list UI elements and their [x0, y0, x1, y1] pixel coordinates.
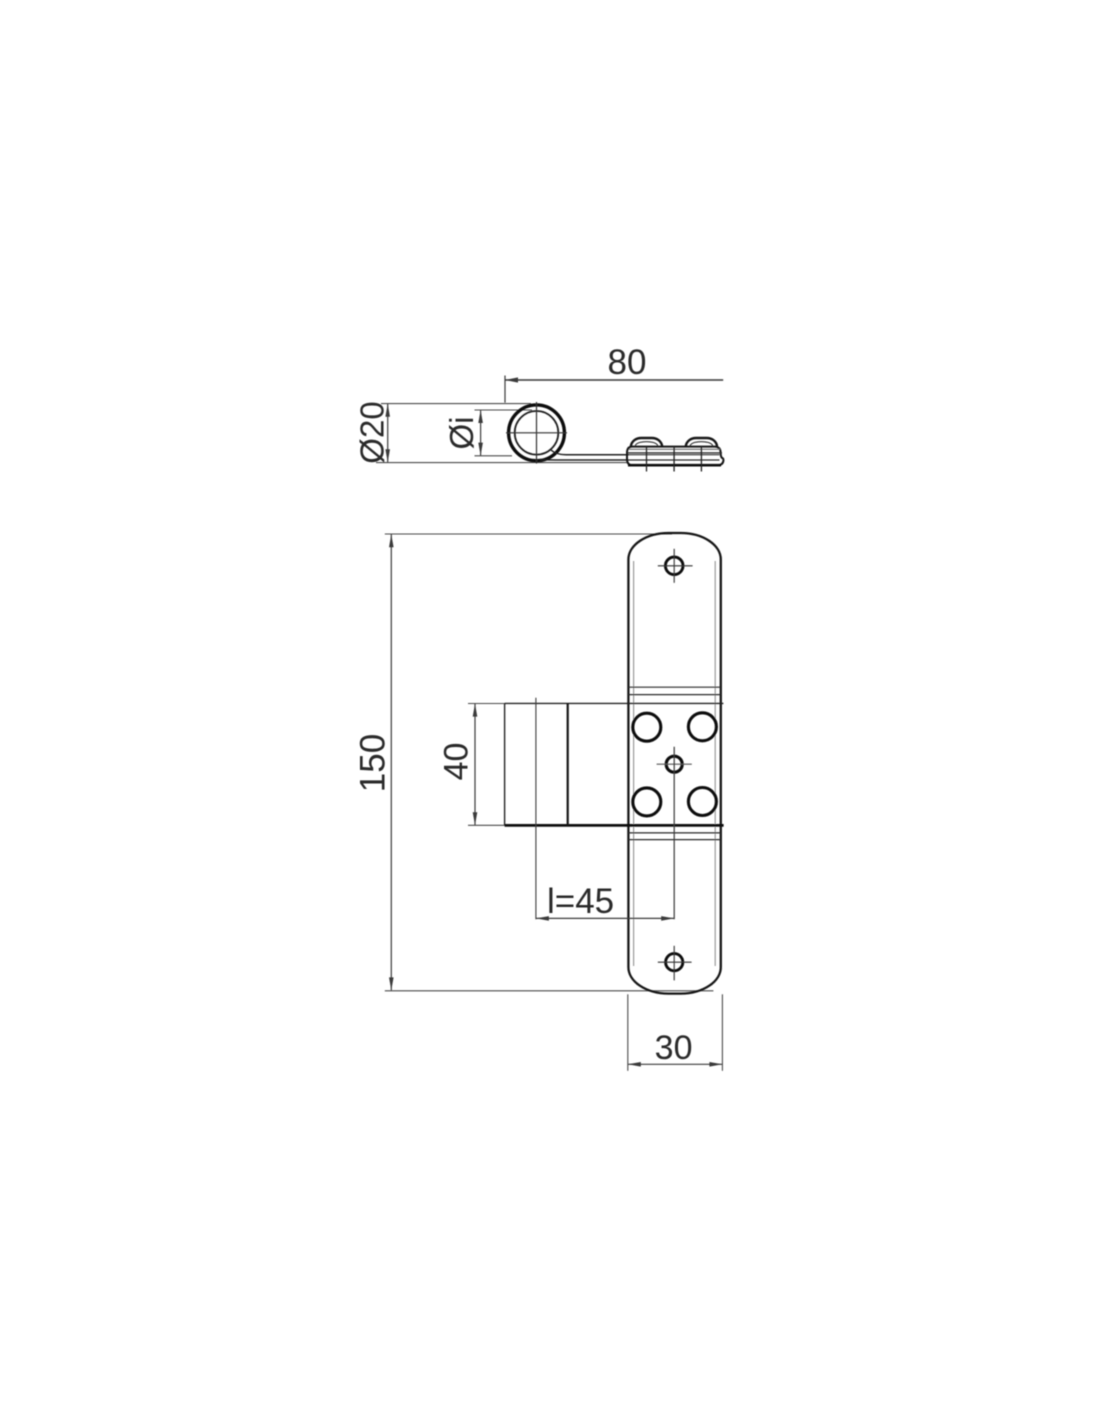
svg-text:l=45: l=45 — [547, 882, 614, 921]
svg-text:Ø20: Ø20 — [354, 401, 391, 463]
svg-text:30: 30 — [655, 1029, 693, 1067]
svg-text:Øi: Øi — [443, 417, 480, 450]
svg-text:80: 80 — [608, 343, 647, 382]
svg-text:150: 150 — [354, 734, 393, 792]
svg-text:40: 40 — [438, 743, 476, 781]
